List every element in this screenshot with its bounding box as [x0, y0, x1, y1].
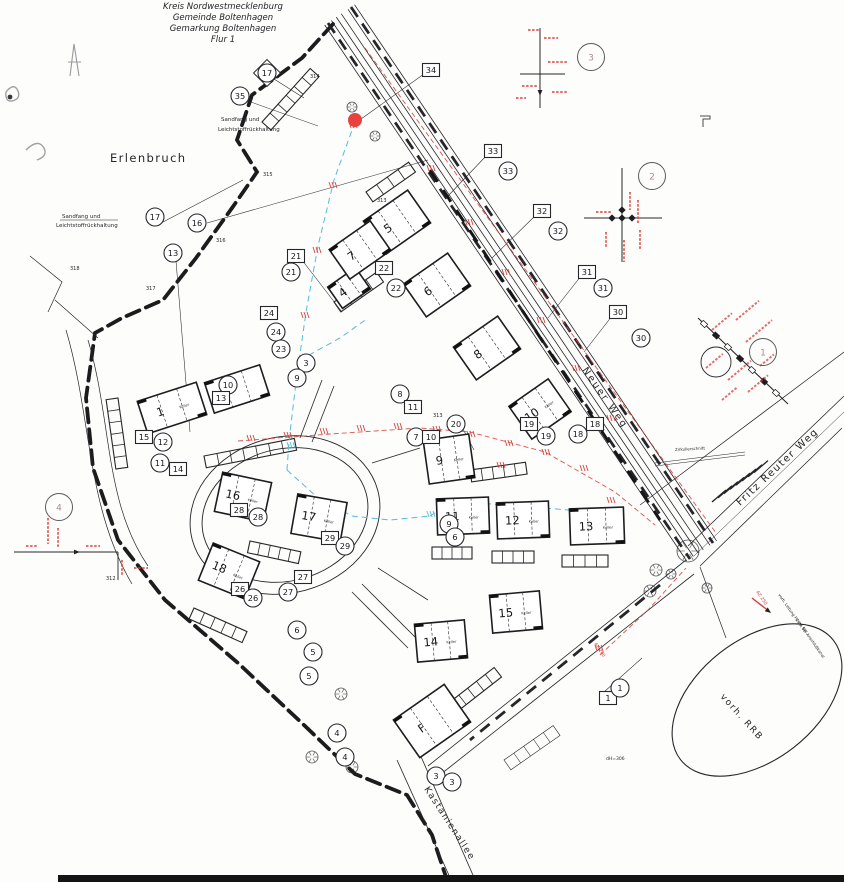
red-annotation-row [736, 301, 759, 320]
shaft-symbol [628, 214, 635, 221]
marker-number: 13 [216, 393, 226, 403]
marker-box-32: 32 [534, 205, 551, 218]
marker-number: 19 [541, 431, 551, 441]
marker-number: 5 [306, 671, 311, 681]
parcel-317: 317 [146, 286, 156, 292]
shaft-symbol [618, 214, 625, 221]
street-spur [300, 380, 322, 438]
building-number: 17 [300, 508, 317, 524]
marker-number: 24 [271, 327, 281, 337]
marker-number: 12 [158, 437, 168, 447]
marker-box-31: 31 [579, 266, 596, 279]
red-annotation-row [706, 354, 723, 368]
garage-row [492, 551, 534, 563]
street-spur [362, 584, 418, 640]
tree-icon [650, 564, 662, 576]
pencil-squiggle [6, 87, 19, 101]
leader-line [492, 215, 536, 258]
marker-number: 32 [553, 226, 563, 236]
marker-number: 20 [451, 419, 461, 429]
parcel-318: 318 [70, 266, 80, 272]
detail-number: 3 [588, 53, 594, 63]
parcel-315: 315 [263, 172, 273, 178]
marker-number: 15 [139, 432, 149, 442]
marker-detail-2: 2 [639, 163, 666, 190]
hatch-mark [712, 490, 726, 502]
marker-number: 3 [433, 771, 438, 781]
garage-row [106, 398, 128, 469]
note-sandfang-top-1: Sandfang und [221, 117, 259, 123]
hatch-mark [748, 465, 762, 477]
marker-circle-24: 24 [267, 323, 285, 341]
sewer-pipe [600, 568, 686, 655]
note-az-250: AZ 250 [754, 590, 768, 607]
marker-number: 32 [537, 206, 547, 216]
marker-number: 31 [598, 283, 608, 293]
marker-circle-5: 5 [304, 643, 322, 661]
building-14: 14Keller [414, 620, 467, 662]
note-sandfang-left-2: Leichtstoffrückhaltung [56, 223, 118, 229]
marker-number: 9 [294, 373, 299, 383]
building-12: 12Keller [496, 501, 549, 539]
keller-label: Keller [469, 515, 480, 519]
marker-circle-35: 35 [231, 87, 249, 105]
building-number: 15 [498, 605, 514, 620]
marker-number: 21 [286, 267, 296, 277]
marker-number: 28 [253, 512, 263, 522]
red-dot-icon [348, 113, 362, 127]
marker-detail-3: 3 [578, 44, 605, 71]
tree-icon [335, 688, 347, 700]
leader-line [584, 316, 612, 352]
shaft-symbol [618, 206, 625, 213]
marker-box-27: 27 [295, 571, 312, 584]
building-number: 16 [224, 486, 241, 503]
marker-number: 17 [150, 212, 160, 222]
marker-circle-3: 3 [443, 773, 461, 791]
marker-box-33: 33 [485, 145, 502, 158]
marker-number: 9 [446, 519, 451, 529]
marker-number: 29 [340, 541, 350, 551]
garage-row [189, 608, 247, 643]
street-spur [378, 568, 428, 600]
title-line-4: Flur 1 [118, 35, 328, 46]
marker-circle-23: 23 [272, 340, 290, 358]
marker-number: 10 [223, 380, 233, 390]
marker-number: 35 [235, 91, 245, 101]
pipe-tick-cluster [607, 497, 615, 503]
tree-icon [702, 583, 712, 593]
marker-box-13: 13 [213, 392, 230, 405]
label-vorh-rrb: vorh. RRB [718, 692, 765, 742]
marker-number: 8 [397, 389, 402, 399]
marker-number: 24 [264, 308, 274, 318]
marker-box-15: 15 [136, 431, 153, 444]
title-line-1: Kreis Nordwestmecklenburg [118, 2, 328, 13]
title-line-2: Gemeinde Boltenhagen [118, 13, 328, 24]
marker-number: 6 [452, 532, 457, 542]
detail-number: 2 [649, 172, 655, 182]
marker-number: 28 [234, 505, 244, 515]
hatch-mark [730, 477, 744, 489]
marker-number: 26 [248, 593, 258, 603]
marker-number: 17 [262, 68, 272, 78]
building-2: 2 [204, 365, 269, 413]
marker-number: 1 [617, 683, 622, 693]
marker-circle-6: 6 [446, 528, 464, 546]
garage-row [432, 547, 472, 559]
keller-label: Keller [529, 519, 540, 523]
pipe-tick-cluster [394, 423, 402, 429]
red-annotation-row [712, 313, 732, 330]
marker-box-19: 19 [521, 418, 538, 431]
marker-box-29: 29 [322, 532, 339, 545]
marker-box-14: 14 [170, 463, 187, 476]
marker-circle-32: 32 [549, 222, 567, 240]
red-annotation-row [728, 361, 751, 380]
street-spur [352, 592, 408, 648]
marker-number: 26 [235, 584, 245, 594]
arrow-head [74, 550, 80, 555]
street-kastanienallee: Kastanienallee [421, 785, 476, 862]
creek-lines [30, 256, 98, 338]
detail-callouts [14, 28, 788, 615]
tree-icon [306, 751, 318, 763]
building-8: 8 [453, 316, 520, 380]
tree-icon [666, 569, 676, 579]
marker-circle-9: 9 [288, 369, 306, 387]
pipe-tick-cluster [502, 269, 510, 275]
marker-number: 3 [449, 777, 454, 787]
keller-label: Keller [603, 525, 614, 529]
marker-circle-6: 6 [288, 621, 306, 639]
scan-mark [700, 116, 710, 127]
marker-box-28: 28 [231, 504, 248, 517]
marker-number: 27 [283, 587, 293, 597]
marker-circle-22: 22 [387, 279, 405, 297]
marker-number: 27 [298, 572, 308, 582]
marker-number: 5 [310, 647, 315, 657]
marker-number: 10 [426, 432, 436, 442]
marker-number: 31 [582, 267, 592, 277]
building-13: 13Keller [569, 507, 624, 545]
hatch-mark [718, 486, 732, 498]
garage-row [504, 726, 560, 770]
marker-circle-4: 4 [328, 724, 346, 742]
marker-number: 22 [391, 283, 401, 293]
marker-number: 6 [294, 625, 299, 635]
marker-number: 33 [503, 166, 513, 176]
marker-circle-30: 30 [632, 329, 650, 347]
garage-row [562, 555, 608, 567]
title-block: Kreis Nordwestmecklenburg Gemeinde Bolte… [118, 2, 328, 46]
arrow-head [538, 90, 543, 96]
ink-blot [8, 95, 13, 100]
parcel-316: 316 [216, 238, 226, 244]
marker-box-34: 34 [423, 64, 440, 77]
marker-circle-31: 31 [594, 279, 612, 297]
section-line [655, 455, 745, 466]
scan-edge-bar [58, 875, 844, 882]
tree-icon [644, 585, 656, 597]
marker-number: 23 [276, 344, 286, 354]
marker-circle-1: 1 [611, 679, 629, 697]
marker-number: 4 [342, 752, 347, 762]
note-dh306: dH=306 [606, 756, 625, 762]
street-fritz-reuter-weg: Fritz Reuter Weg [735, 426, 822, 508]
marker-number: 3 [303, 358, 308, 368]
marker-number: 18 [590, 419, 600, 429]
hatch-mark [724, 482, 738, 494]
building-number: 12 [505, 513, 520, 528]
marker-detail-1: 1 [750, 339, 777, 366]
marker-diamond-17: 17 [254, 60, 281, 87]
marker-circle-12: 12 [154, 433, 172, 451]
parcel-314: 314 [310, 74, 320, 80]
pipe-tick-cluster [357, 425, 365, 431]
parcel-313b: 313 [433, 413, 443, 419]
note-zirkulierschnitt: Zirkulierschnitt [675, 445, 706, 452]
marker-box-22: 22 [376, 262, 393, 275]
marker-number: 30 [636, 333, 646, 343]
marker-number: 34 [426, 65, 436, 75]
marker-circle-20: 20 [447, 415, 465, 433]
contour-line [88, 340, 148, 566]
detail-number: 4 [56, 503, 62, 513]
red-annotation-row [722, 387, 737, 400]
marker-number: 1 [605, 693, 610, 703]
marker-circle-19: 19 [537, 427, 555, 445]
leader-line [274, 79, 304, 98]
garage-row [204, 438, 297, 467]
label-erlenbruch: Erlenbruch [110, 151, 186, 165]
pipe-tick-cluster [427, 511, 435, 517]
marker-detail-4: 4 [46, 494, 73, 521]
marker-number: 11 [408, 402, 418, 412]
building-1: 1Keller [137, 382, 206, 433]
marker-number: 22 [379, 263, 389, 273]
marker-number: 14 [173, 464, 183, 474]
building-6: 6 [403, 253, 470, 317]
tree-icon [347, 102, 357, 112]
marker-number: 18 [573, 429, 583, 439]
marker-circle-28: 28 [249, 508, 267, 526]
road-fritz-reuter-line [700, 428, 842, 566]
marker-circle-3: 3 [427, 767, 445, 785]
title-line-3: Gemarkung Boltenhagen [118, 24, 328, 35]
marker-circle-21: 21 [282, 263, 300, 281]
marker-circle-13: 13 [164, 244, 182, 262]
marker-circle-29: 29 [336, 537, 354, 555]
parcel-313: 313 [377, 198, 387, 204]
water-pipe [300, 318, 368, 360]
marker-box-18: 18 [587, 418, 604, 431]
note-sandfang-left-1: Sandfang und [62, 214, 100, 220]
marker-number: 19 [524, 419, 534, 429]
pipe-tick-cluster [320, 428, 328, 434]
marker-circle-5: 5 [300, 667, 318, 685]
marker-number: 30 [613, 307, 623, 317]
marker-box-24: 24 [261, 307, 278, 320]
marker-number: 29 [325, 533, 335, 543]
buildings: 1Keller2456789Keller10Keller11Keller12Ke… [137, 190, 624, 757]
site-plan-scan: 1Keller2456789Keller10Keller11Keller12Ke… [0, 0, 844, 882]
rrb-inlet-line [700, 567, 726, 638]
note-sw-anschluss: zum SW-Anschlußkanal [795, 618, 826, 659]
marker-circle-16: 16 [188, 214, 206, 232]
pipe-tick-cluster [580, 465, 588, 471]
pipe-tick-cluster [537, 317, 545, 323]
marker-number: 11 [155, 458, 165, 468]
tree-icon [677, 540, 699, 562]
pencil-spire-sketch [68, 44, 81, 76]
marker-box-11: 11 [405, 401, 422, 414]
marker-circle-17: 17 [146, 208, 164, 226]
tree-icon [370, 131, 380, 141]
marker-number: 21 [291, 251, 301, 261]
detail-number: 1 [760, 348, 766, 358]
marker-number: 16 [192, 218, 202, 228]
marker-number: 4 [334, 728, 339, 738]
marker-box-10: 10 [423, 431, 440, 444]
road-fritz-reuter-line [694, 412, 844, 556]
marker-number: 33 [488, 146, 498, 156]
marker-number: 7 [413, 432, 418, 442]
leader-line [548, 276, 581, 318]
marker-circle-26: 26 [244, 589, 262, 607]
marker-box-21: 21 [288, 250, 305, 263]
street-spur [372, 448, 420, 463]
building-number: 13 [578, 519, 593, 534]
building-15: 15Keller [489, 591, 542, 633]
pencil-squiggle [26, 143, 45, 160]
garage-row [470, 462, 527, 482]
marker-circle-4: 4 [336, 748, 354, 766]
hatch-mark [742, 469, 756, 481]
marker-box-30: 30 [610, 306, 627, 319]
shaft-circle [701, 347, 731, 377]
rrb-basin [644, 593, 844, 807]
section-line [655, 452, 745, 463]
marker-dot-dot [348, 113, 362, 127]
marker-number: 13 [168, 248, 178, 258]
pipe-tick-cluster [505, 440, 513, 446]
road-south-line [436, 574, 694, 778]
shaft-symbol [608, 214, 615, 221]
hatch-mark [736, 473, 750, 485]
marker-circle-11: 11 [151, 454, 169, 472]
marker-circle-18: 18 [569, 425, 587, 443]
parcel-312: 312 [106, 576, 116, 582]
note-sandfang-top-2: Leichtstoffrückhaltung [218, 127, 280, 133]
marker-circle-33: 33 [499, 162, 517, 180]
building-number: 14 [423, 634, 439, 649]
plan-canvas: 1Keller2456789Keller10Keller11Keller12Ke… [0, 0, 844, 882]
marker-circle-27: 27 [279, 583, 297, 601]
note-az-200: AZ 200 [592, 642, 606, 659]
